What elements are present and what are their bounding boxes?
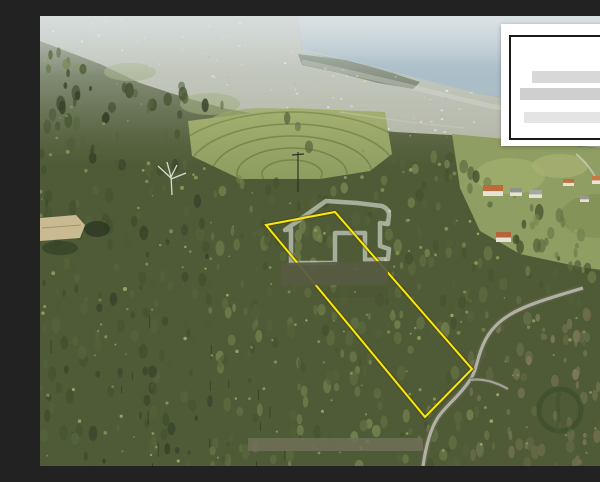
logo-text-placeholder-bar — [532, 71, 600, 83]
aerial-photo — [40, 16, 600, 466]
logo-text-placeholder-bar — [524, 112, 600, 123]
agency-logo-frame — [509, 35, 600, 140]
agency-logo-card — [501, 24, 600, 146]
logo-text-placeholder-bar — [520, 88, 600, 100]
